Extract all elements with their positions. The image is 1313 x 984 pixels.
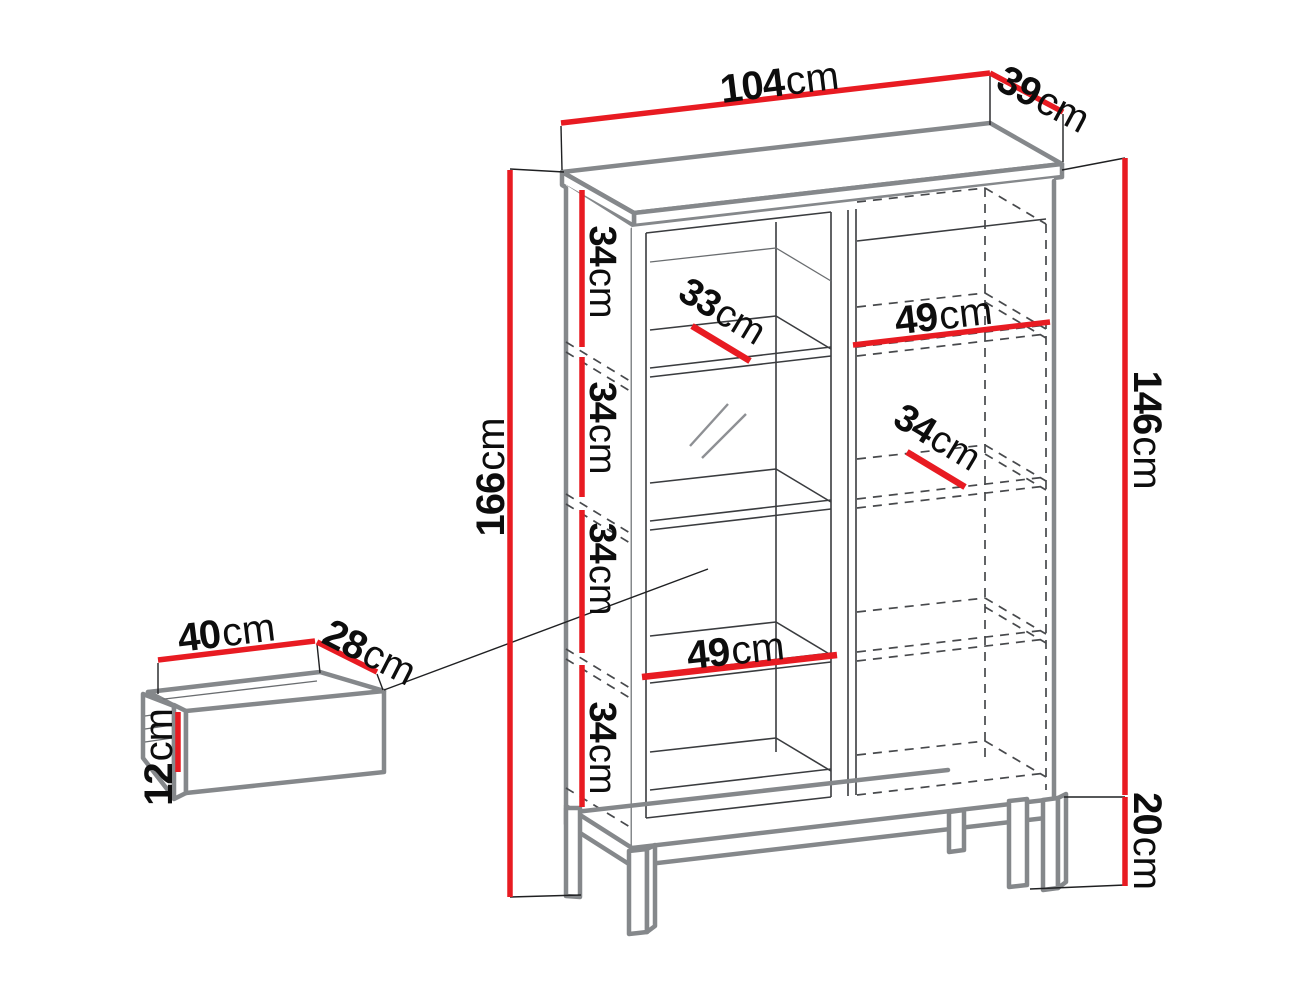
drawer-front-panel (186, 691, 384, 793)
dim-drawer-height-label: 12cm (137, 708, 181, 806)
dim-total-height: 166cm (469, 170, 513, 897)
leg-front-left-side (647, 845, 655, 932)
dimension-diagram: 104cm 39cm 166cm 146cm 20cm 34cm (0, 0, 1313, 984)
dim-drawer-depth: 28cm (316, 611, 423, 695)
leg-back-left (566, 808, 580, 897)
dim-body-height: 146cm (1125, 158, 1169, 795)
dim-shelf-spacing-3-label: 34cm (581, 523, 623, 616)
dim-shelf-spacing-1-label: 34cm (581, 226, 623, 319)
dim-top-depth-label: 39cm (990, 57, 1097, 142)
dim-drawer-depth-label: 28cm (316, 611, 423, 695)
dim-total-height-label: 166cm (469, 417, 513, 536)
dim-shelf-spacing-4-label: 34cm (581, 702, 623, 795)
dim-top-depth: 39cm (990, 57, 1097, 142)
leg-back-right (949, 810, 964, 852)
cabinet (562, 123, 1066, 934)
dim-base-height-label: 20cm (1125, 792, 1169, 890)
dim-top-width: 104cm (561, 54, 990, 123)
leg-front-right-side (1058, 794, 1066, 888)
dim-shelf-spacing-2-label: 34cm (581, 382, 623, 475)
dim-drawer-width-label: 40cm (175, 605, 277, 661)
dim-drawer-height: 12cm (137, 708, 181, 806)
leg-front-left (629, 849, 647, 934)
dim-base-height: 20cm (1125, 792, 1169, 890)
diagram-canvas: 104cm 39cm 166cm 146cm 20cm 34cm (0, 0, 1313, 984)
dim-top-width-label: 104cm (718, 54, 842, 112)
leg-mid-right (1009, 799, 1027, 887)
dim-drawer-width: 40cm (158, 605, 315, 661)
dim-body-height-label: 146cm (1125, 370, 1169, 489)
